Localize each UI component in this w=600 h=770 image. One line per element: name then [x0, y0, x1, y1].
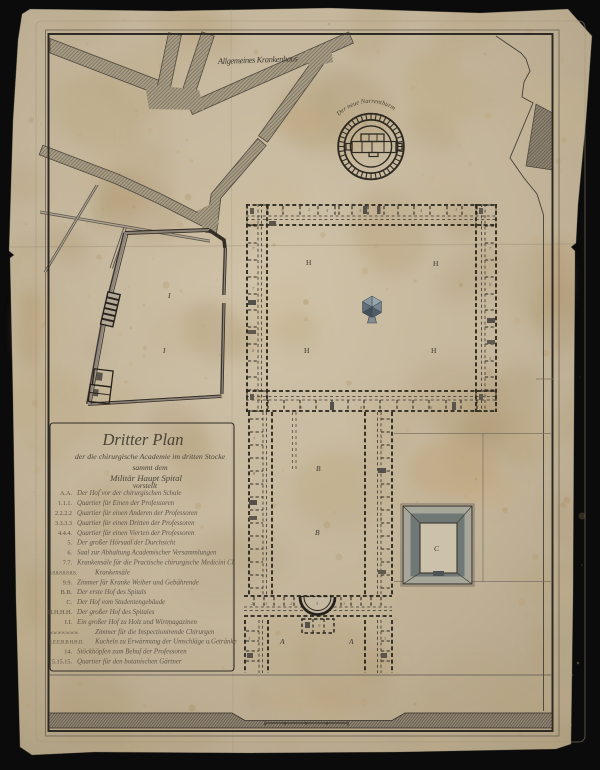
- svg-text:H: H: [431, 346, 437, 355]
- svg-text:B: B: [315, 528, 320, 537]
- svg-text:H: H: [433, 259, 439, 268]
- svg-text:7.7.: 7.7.: [63, 560, 73, 567]
- svg-text:Dritter Plan: Dritter Plan: [101, 430, 183, 449]
- svg-text:Kucheln zu Erwärmung der Umsch: Kucheln zu Erwärmung der Umschläge u.Get…: [94, 639, 237, 646]
- svg-text:sammt dem: sammt dem: [132, 463, 168, 472]
- svg-text:Zimmer für Kranke Weiber und G: Zimmer für Kranke Weiber und Gebährende: [77, 579, 199, 586]
- svg-text:Der großer Hof des Spitales: Der großer Hof des Spitales: [76, 609, 155, 616]
- svg-text:3.3.3.3: 3.3.3.3: [55, 520, 72, 527]
- svg-text:I: I: [162, 346, 166, 355]
- svg-text:1.1.1.: 1.1.1.: [58, 500, 72, 507]
- svg-text:15.15.15.: 15.15.15.: [49, 659, 73, 666]
- svg-text:Saal zur Abhaltung Academische: Saal zur Abhaltung Academischer Versamml…: [77, 550, 217, 557]
- svg-text:H: H: [304, 346, 310, 355]
- svg-text:8.8.8.8.8.8.8.8.: 8.8.8.8.8.8.8.8.: [49, 571, 77, 576]
- svg-text:A.A.: A.A.: [60, 490, 72, 497]
- svg-text:Stöckhöpfen zum Behuf der Prof: Stöckhöpfen zum Behuf der Professoren: [77, 649, 187, 656]
- svg-text:Quartier für einen Vierten der: Quartier für einen Vierten der Professor…: [77, 530, 195, 537]
- svg-text:Zimmer für die Inspectionirend: Zimmer für die Inspectionirende Chirurge…: [95, 629, 215, 636]
- svg-text:I: I: [167, 291, 171, 300]
- svg-text:Quartier für Einen der Profess: Quartier für Einen der Professoren: [77, 500, 175, 507]
- svg-text:Der erste Hof des Spitals: Der erste Hof des Spitals: [76, 589, 147, 596]
- svg-text:Der Hof vom Studentengebäude: Der Hof vom Studentengebäude: [76, 599, 165, 606]
- svg-text:14.: 14.: [64, 649, 72, 656]
- svg-text:H: H: [306, 258, 312, 267]
- svg-text:w.w.w.w.w.w.w.: w.w.w.w.w.w.w.: [49, 631, 79, 636]
- svg-text:Ein großer Hof zu Holz und Wir: Ein großer Hof zu Holz und Wirtmagazinen: [76, 619, 198, 626]
- svg-text:B: B: [316, 464, 321, 473]
- svg-text:Quartier für den botanischen G: Quartier für den botanischen Gärtner: [77, 659, 182, 666]
- svg-text:Quartier für einen Anderen der: Quartier für einen Anderen der Professor…: [77, 510, 198, 517]
- svg-text:2.2.2.2: 2.2.2.2: [55, 510, 72, 517]
- svg-text:6.: 6.: [67, 550, 72, 557]
- svg-text:Krankensäle: Krankensäle: [94, 569, 130, 576]
- svg-text:vorstellt: vorstellt: [133, 481, 158, 490]
- svg-text:I.I.: I.I.: [65, 619, 73, 626]
- svg-text:H.H.H.H.: H.H.H.H.: [48, 609, 73, 616]
- svg-text:Der Hof vor der chirurgischen: Der Hof vor der chirurgischen Schule: [76, 490, 181, 497]
- svg-text:4.4.4.: 4.4.4.: [58, 530, 72, 537]
- svg-text:E.E.E.B.B.H.H.D.: E.E.E.B.B.H.H.D.: [49, 641, 83, 646]
- svg-text:Quartier für einen Dritten der: Quartier für einen Dritten der Professor…: [77, 520, 195, 527]
- svg-text:C.: C.: [66, 599, 72, 606]
- svg-text:A: A: [279, 637, 285, 646]
- svg-text:B.B.: B.B.: [61, 589, 73, 596]
- svg-text:Krankensäle für die Practische: Krankensäle für die Practische chirurgis…: [76, 560, 236, 567]
- svg-text:1: 1: [455, 207, 457, 212]
- svg-text:A: A: [348, 637, 354, 646]
- svg-text:9.9.: 9.9.: [63, 579, 73, 586]
- svg-text:der die chirurgische Academie: der die chirurgische Academie im dritten…: [75, 452, 226, 461]
- svg-text:Der großer Hörsaal der Durchsi: Der großer Hörsaal der Durchsicht: [76, 540, 176, 547]
- svg-text:5.: 5.: [67, 540, 72, 547]
